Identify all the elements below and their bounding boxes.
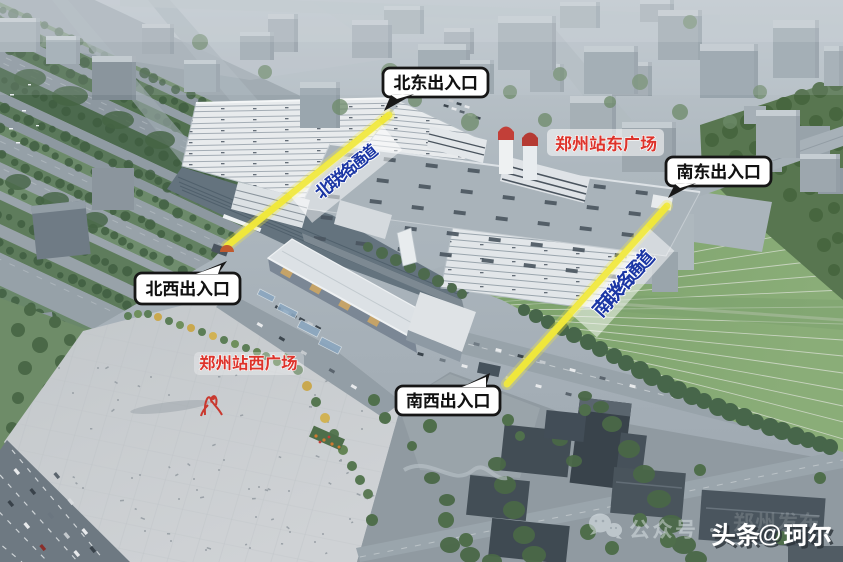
- svg-text:@: @: [758, 521, 781, 548]
